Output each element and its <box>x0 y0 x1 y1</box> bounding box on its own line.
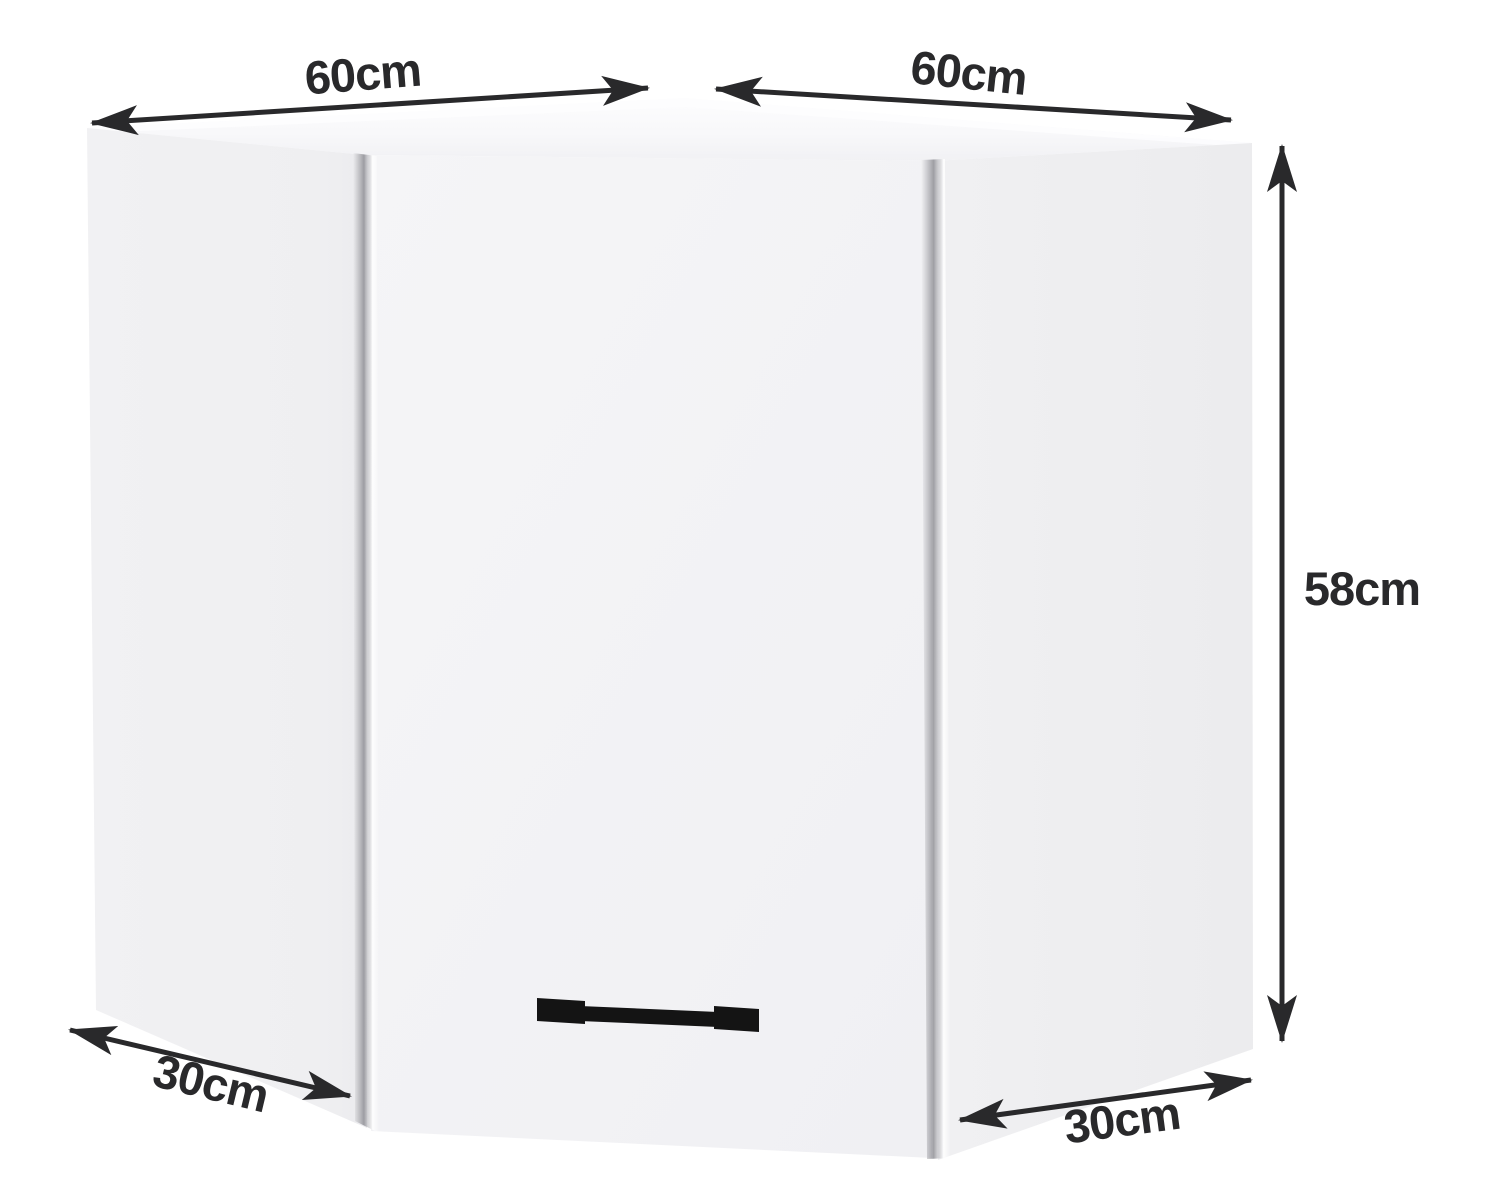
label-top-right-width: 60cm <box>908 40 1029 105</box>
diagram-canvas: 60cm 60cm 58cm 30cm 30cm <box>0 0 1495 1200</box>
corner-cabinet-dimension-diagram: 60cm 60cm 58cm 30cm 30cm <box>0 0 1495 1200</box>
cabinet <box>87 98 1253 1160</box>
door-seam-left <box>353 153 379 1133</box>
label-top-left-width: 60cm <box>303 43 423 105</box>
cabinet-center-door <box>365 155 932 1158</box>
label-height: 58cm <box>1304 562 1420 615</box>
cabinet-right-side-panel <box>932 143 1253 1160</box>
cabinet-left-side-panel <box>87 128 367 1128</box>
